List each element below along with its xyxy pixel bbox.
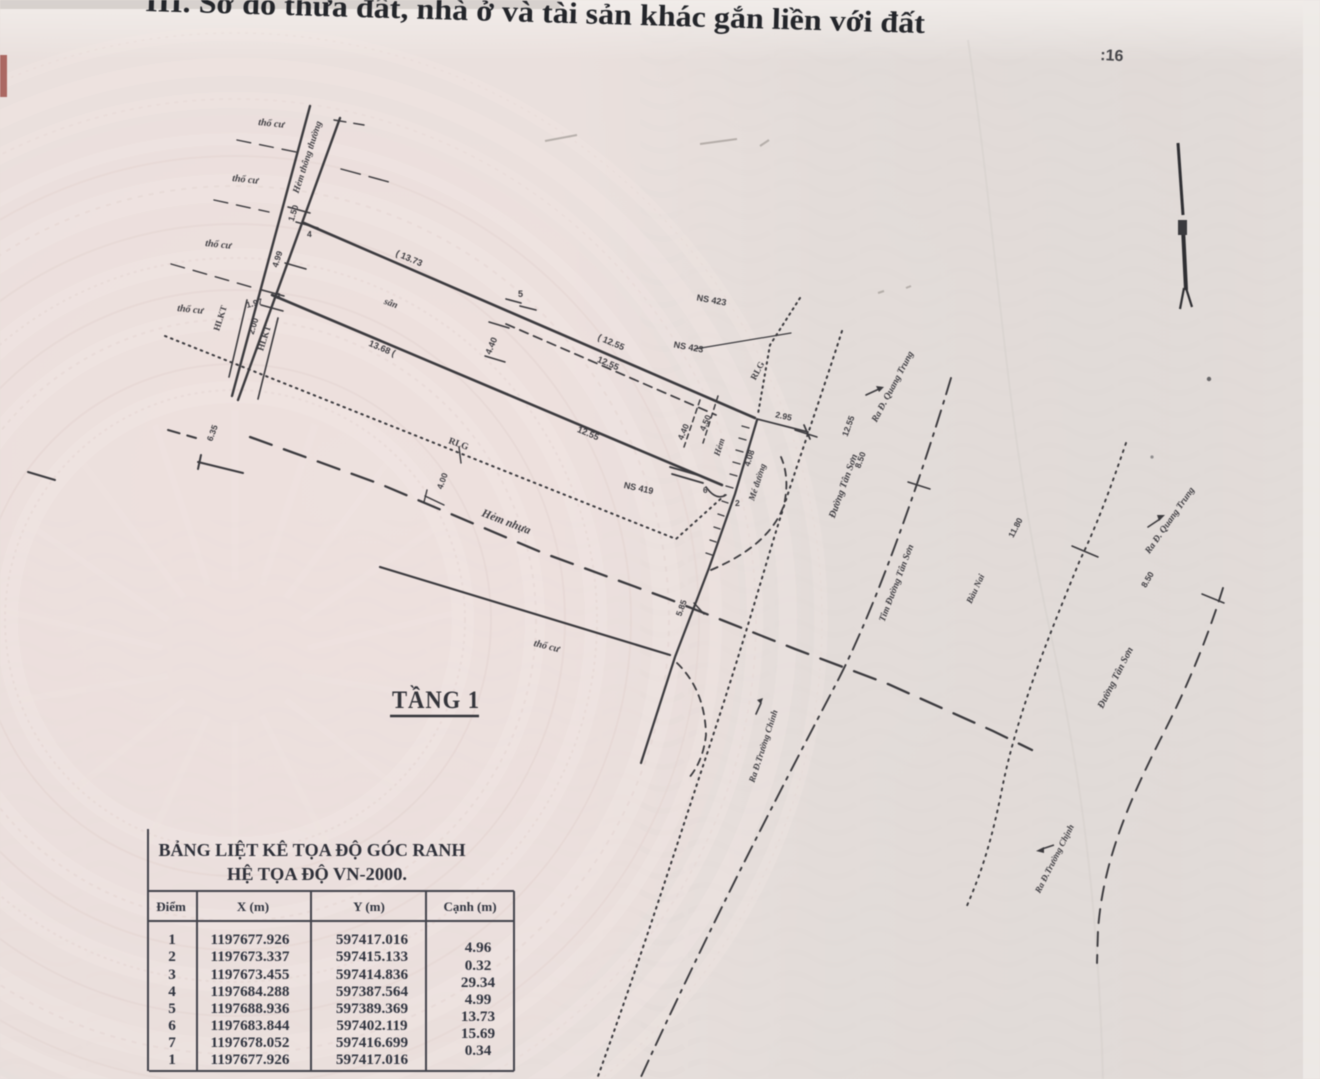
svg-text:597389.369: 597389.369	[336, 1000, 409, 1017]
svg-text:3: 3	[276, 291, 281, 301]
svg-text:3: 3	[168, 966, 176, 983]
svg-text:4.99: 4.99	[465, 991, 492, 1008]
svg-text:6: 6	[168, 1017, 176, 1034]
svg-text:Y (m): Y (m)	[353, 899, 385, 914]
svg-text::16: :16	[1100, 47, 1124, 65]
svg-text:1197673.337: 1197673.337	[211, 948, 290, 965]
svg-text:5: 5	[168, 1000, 176, 1017]
svg-text:2: 2	[735, 498, 740, 508]
svg-text:Cạnh (m): Cạnh (m)	[443, 899, 496, 914]
svg-text:1197683.844: 1197683.844	[211, 1017, 290, 1034]
svg-text:4: 4	[168, 983, 176, 1000]
svg-text:6: 6	[703, 486, 708, 495]
svg-text:0.34: 0.34	[465, 1042, 492, 1059]
svg-text:1197678.052: 1197678.052	[211, 1034, 290, 1051]
svg-text:29.34: 29.34	[461, 974, 496, 991]
svg-text:BẢNG LIỆT KÊ TỌA ĐỘ GÓC RANH: BẢNG LIỆT KÊ TỌA ĐỘ GÓC RANH	[159, 839, 466, 860]
svg-text:1197677.926: 1197677.926	[211, 931, 290, 948]
svg-text:7: 7	[168, 1034, 176, 1051]
svg-text:1: 1	[168, 1051, 176, 1068]
svg-text:597417.016: 597417.016	[336, 931, 409, 948]
svg-text:TẦNG 1: TẦNG 1	[392, 685, 480, 714]
svg-text:597417.016: 597417.016	[336, 1051, 409, 1068]
svg-text:4.96: 4.96	[465, 939, 492, 956]
svg-text:HỆ TỌA ĐỘ VN-2000.: HỆ TỌA ĐỘ VN-2000.	[227, 863, 407, 884]
svg-text:0.32: 0.32	[465, 957, 492, 974]
svg-text:4: 4	[307, 229, 312, 239]
svg-text:597402.119: 597402.119	[336, 1017, 408, 1034]
svg-text:1197677.926: 1197677.926	[211, 1051, 290, 1068]
svg-text:597414.836: 597414.836	[336, 966, 409, 983]
svg-text:Điểm: Điểm	[156, 899, 186, 914]
svg-text:1197673.455: 1197673.455	[211, 966, 290, 983]
svg-text:X (m): X (m)	[237, 899, 269, 914]
svg-text:597415.133: 597415.133	[336, 948, 409, 965]
svg-text:1197684.288: 1197684.288	[211, 983, 290, 1000]
svg-text:2: 2	[168, 948, 176, 965]
svg-text:597387.564: 597387.564	[336, 983, 409, 1000]
svg-text:597416.699: 597416.699	[336, 1034, 409, 1051]
svg-text:1: 1	[168, 931, 176, 948]
svg-text:13.73: 13.73	[461, 1008, 496, 1025]
svg-text:15.69: 15.69	[461, 1025, 496, 1042]
svg-text:1197688.936: 1197688.936	[211, 1000, 290, 1017]
svg-text:5: 5	[518, 289, 523, 299]
